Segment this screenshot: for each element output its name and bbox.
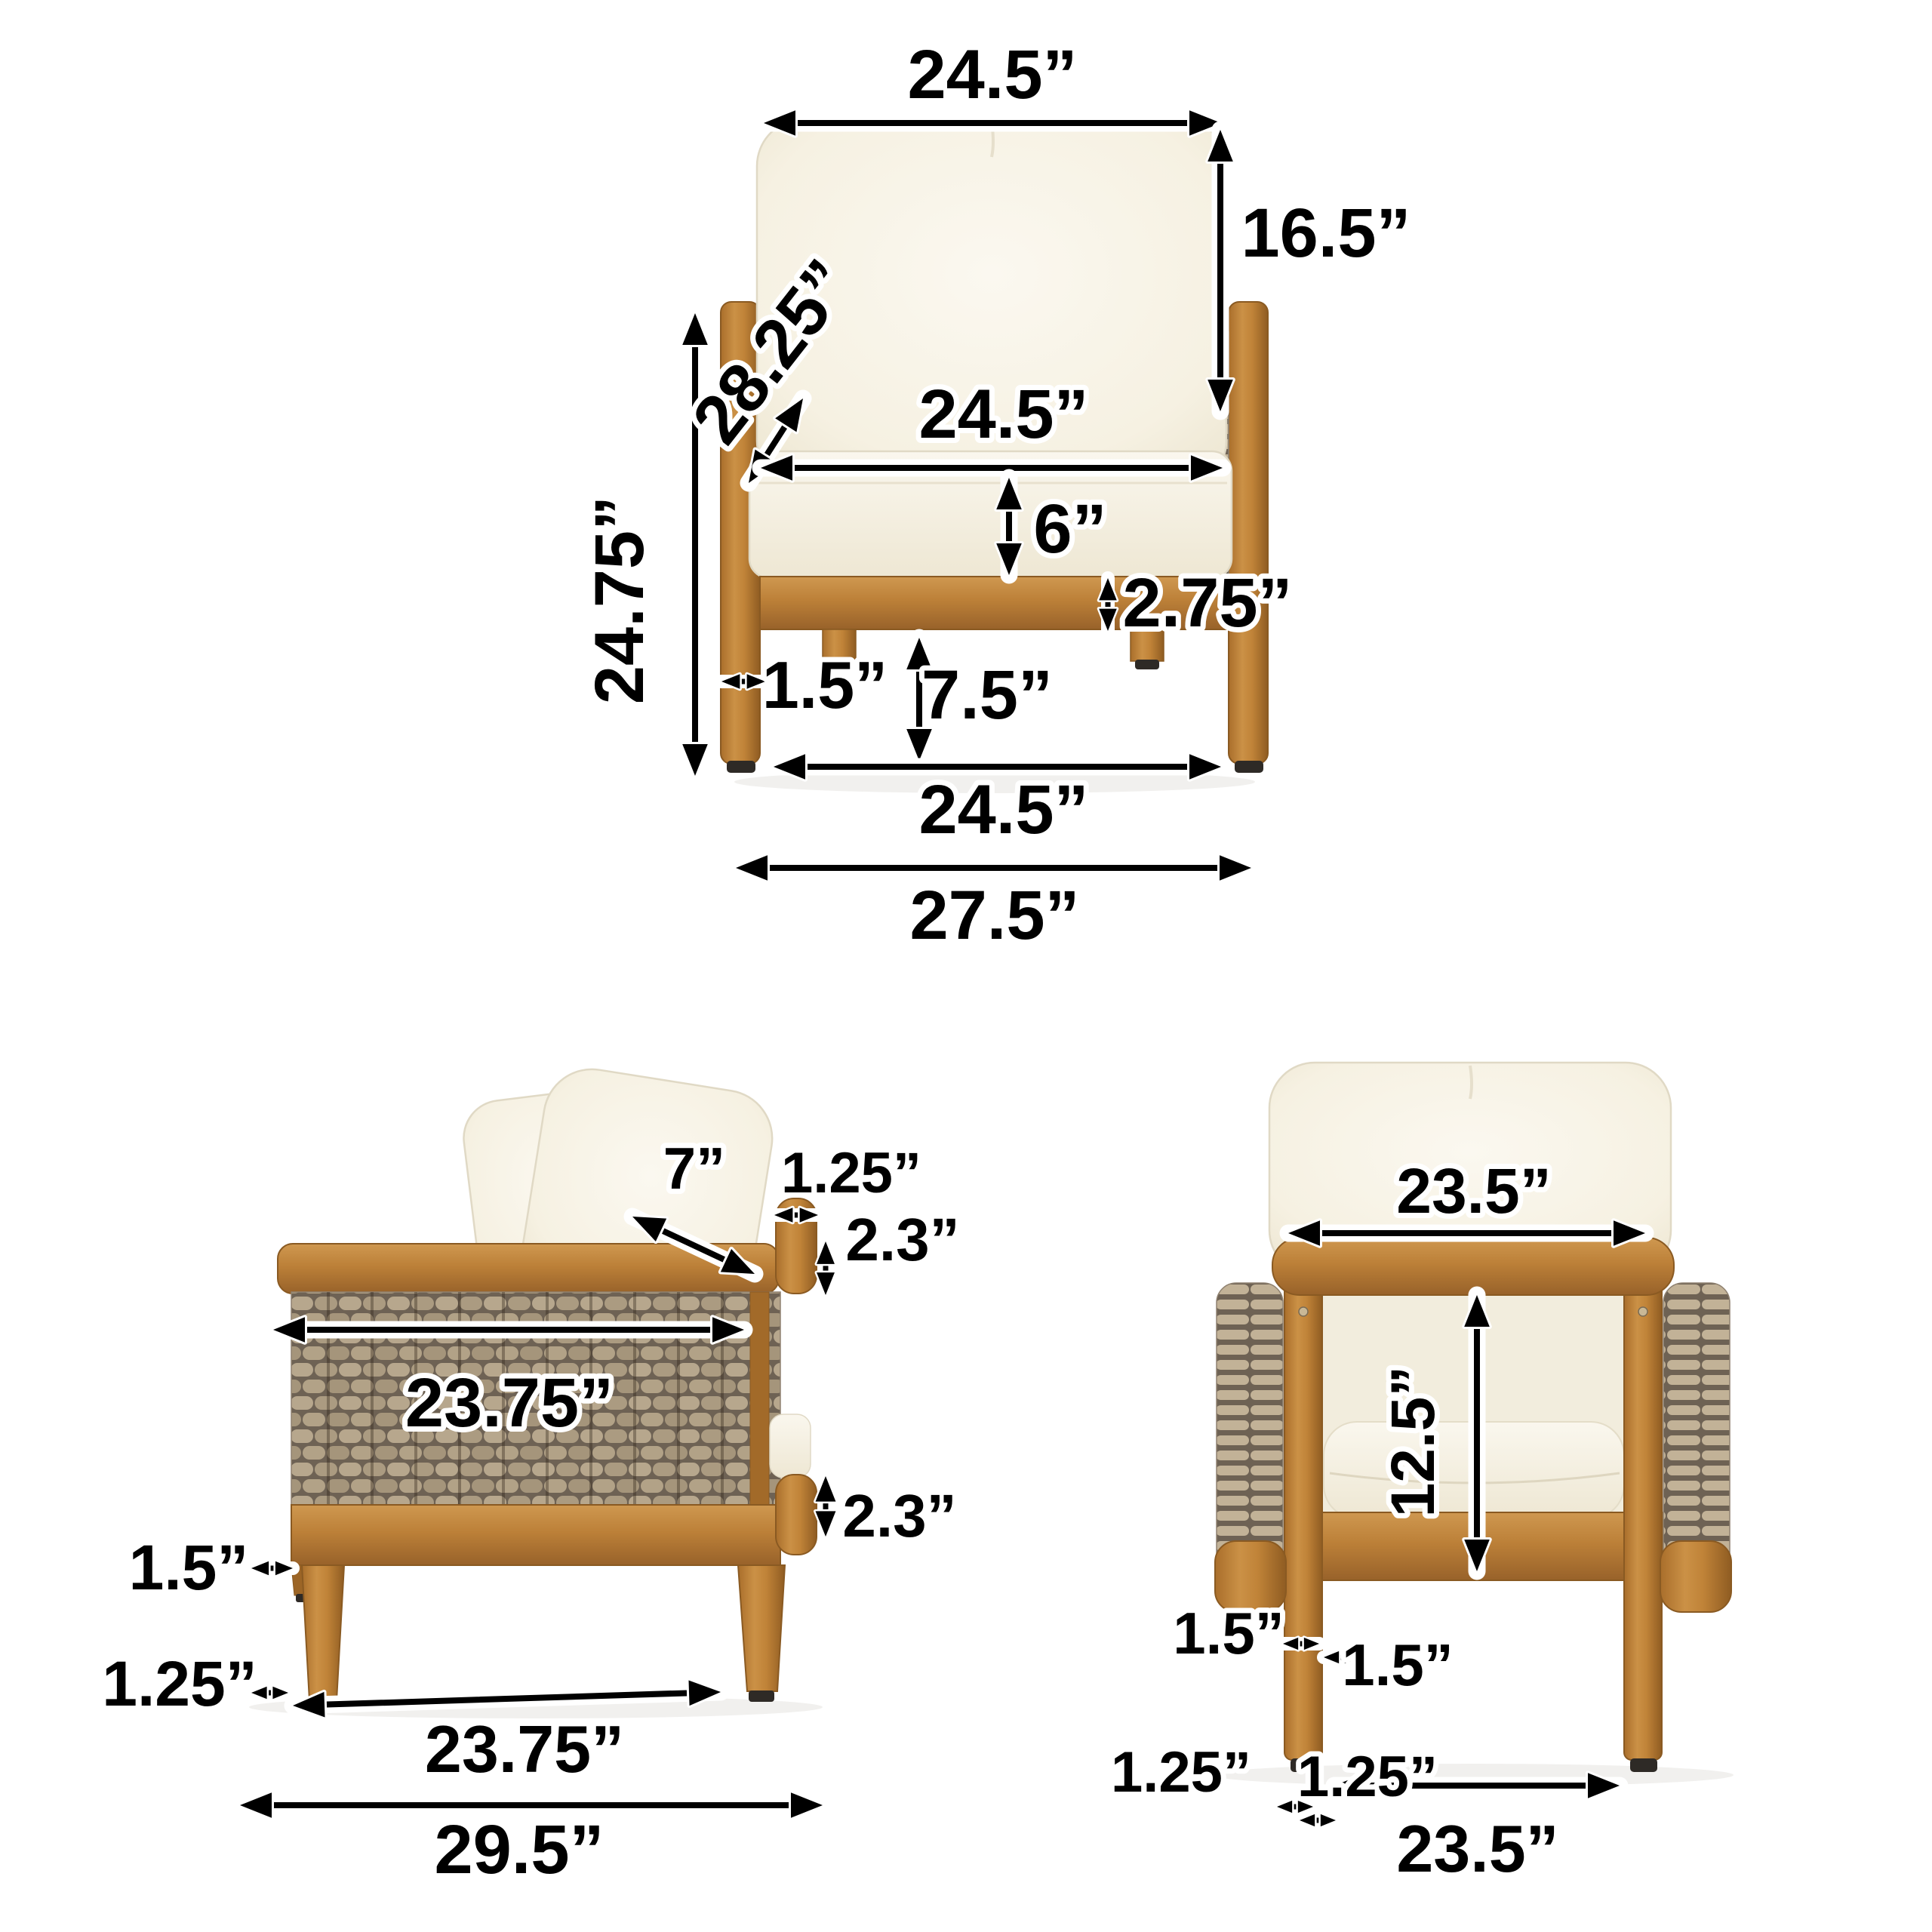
label-back-foot-width-b: 1.25” — [1297, 1745, 1438, 1809]
label-back-opening-height: 12.5” — [1379, 1366, 1447, 1518]
label-front-leg-width: 1.5” — [762, 648, 888, 722]
side-bottom-rail — [291, 1505, 780, 1565]
side-front-rim-bottom — [776, 1475, 817, 1555]
label-side-rim-bottom-thickness: 2.3” — [842, 1482, 956, 1549]
back-right-foot-pad — [1630, 1758, 1657, 1772]
label-side-leg-width: 1.5” — [129, 1532, 249, 1603]
side-front-foot-pad — [749, 1690, 774, 1702]
front-inner-right-foot — [1135, 660, 1159, 669]
label-side-rim-top-thickness: 2.3” — [845, 1206, 959, 1273]
label-back-foot-width-a: 1.25” — [1111, 1740, 1251, 1804]
label-side-rim-overhang: 1.25” — [781, 1141, 921, 1205]
label-front-seat-thickness: 6” — [1033, 491, 1106, 568]
back-right-bottom-rim — [1660, 1541, 1731, 1612]
label-back-leg-width-b: 1.5” — [1342, 1632, 1453, 1698]
label-side-leg-span: 23.75” — [425, 1712, 624, 1786]
label-front-pillow-height: 16.5” — [1241, 195, 1411, 272]
label-front-seat-width: 24.5” — [918, 376, 1088, 453]
dim-front-rail-height — [1099, 578, 1117, 631]
side-cushion-peek — [770, 1414, 811, 1478]
label-back-leg-span: 23.5” — [1396, 1811, 1558, 1886]
back-left-screw — [1299, 1307, 1308, 1316]
back-left-leg — [1284, 1244, 1322, 1760]
label-side-overall-depth: 29.5” — [434, 1811, 604, 1888]
back-pillow-crease — [1470, 1066, 1472, 1099]
label-front-total-height: 24.75” — [581, 496, 658, 704]
dim-side-rim-bottom-thickness — [816, 1476, 836, 1537]
dim-back-leg-width-a — [1283, 1638, 1319, 1650]
diagram-canvas: 24.5” 16.5” 28.25” 24.75” 24.5” 6” 2.75”… — [0, 0, 1932, 1932]
dim-back-foot-width-b — [1300, 1814, 1336, 1826]
side-front-leg — [738, 1565, 785, 1691]
front-right-arm-post — [1229, 302, 1268, 764]
label-front-clearance: 7.5” — [921, 657, 1053, 734]
label-front-overall-width: 27.5” — [909, 877, 1079, 954]
label-front-rail-height: 2.75” — [1122, 565, 1292, 641]
label-back-leg-width-a: 1.5” — [1173, 1600, 1284, 1666]
back-right-screw — [1638, 1307, 1647, 1316]
dim-front-leg-width — [721, 674, 765, 688]
back-right-leg — [1624, 1244, 1662, 1760]
label-side-pillow-depth: 7” — [663, 1135, 725, 1201]
label-front-leg-span: 24.5” — [918, 771, 1088, 848]
front-left-foot-pad — [727, 761, 755, 773]
label-back-width: 23.5” — [1396, 1155, 1552, 1226]
dimension-diagram: 24.5” 16.5” 28.25” 24.75” 24.5” 6” 2.75”… — [0, 0, 1932, 1932]
dim-side-rim-top-thickness — [817, 1241, 835, 1295]
label-side-foot-width: 1.25” — [102, 1648, 257, 1719]
side-back-leg — [302, 1565, 344, 1700]
label-front-pillow-width: 24.5” — [907, 36, 1077, 113]
front-right-foot-pad — [1235, 761, 1263, 773]
dim-side-leg-width — [251, 1561, 293, 1575]
label-side-frame-depth-top: 23.75” — [405, 1364, 614, 1441]
dim-side-rim-overhang — [774, 1207, 818, 1222]
